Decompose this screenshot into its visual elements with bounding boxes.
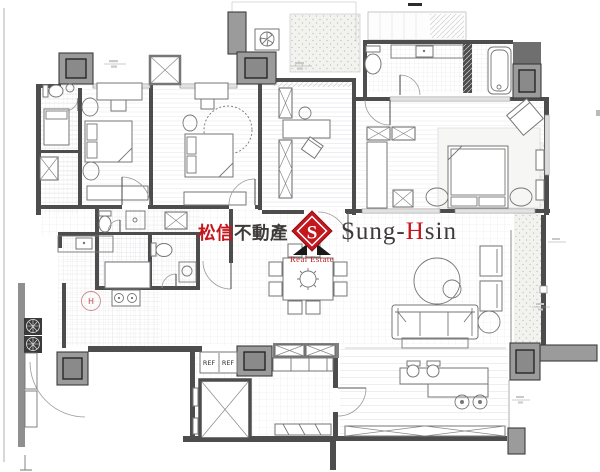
column bbox=[59, 53, 93, 84]
corner-tick bbox=[20, 455, 32, 470]
shoe-cabinet bbox=[273, 358, 333, 371]
canister bbox=[407, 361, 420, 377]
armchair bbox=[480, 281, 502, 311]
bed-single bbox=[44, 109, 69, 145]
desk bbox=[283, 120, 330, 138]
window bbox=[545, 115, 549, 175]
watermark-chinese-red: 松信 bbox=[198, 224, 234, 244]
watermark-chinese: 松信不動產 bbox=[198, 220, 288, 245]
canister bbox=[427, 361, 440, 377]
dining-chair bbox=[306, 301, 320, 314]
desk bbox=[195, 83, 228, 99]
toilet bbox=[43, 85, 63, 97]
watermark-subtitle: Real Estate bbox=[290, 254, 334, 264]
bed-double bbox=[85, 121, 132, 162]
watermark-chinese-dark: 不動產 bbox=[234, 224, 288, 244]
column bbox=[237, 346, 272, 376]
h-marker-label: H bbox=[88, 297, 94, 306]
floor-plan-page: H bbox=[0, 0, 600, 472]
dining-chair bbox=[288, 301, 302, 314]
kitchen-island bbox=[105, 262, 150, 288]
bed-double bbox=[185, 134, 233, 177]
top-dash-mark bbox=[408, 3, 422, 6]
planter bbox=[536, 180, 544, 200]
ref-label-right: REF bbox=[222, 359, 235, 367]
service-wall-bar bbox=[18, 283, 25, 447]
dining-chair bbox=[334, 282, 347, 296]
stove bbox=[112, 290, 140, 306]
desk bbox=[97, 83, 142, 100]
refrigerator-cabinet: REF REF bbox=[200, 352, 237, 373]
logo-letter: S bbox=[307, 223, 318, 244]
dining-chair bbox=[269, 282, 282, 296]
toilet bbox=[151, 243, 172, 257]
elevator-shaft-main bbox=[193, 380, 250, 439]
window bbox=[390, 97, 510, 101]
diamond-logo-icon: S bbox=[291, 210, 333, 256]
desk-chair bbox=[111, 100, 126, 111]
window-marker bbox=[540, 286, 547, 293]
dining-chair bbox=[269, 262, 282, 276]
dining-chair bbox=[334, 262, 347, 276]
column bbox=[513, 64, 541, 98]
bottom-cabinet-row bbox=[345, 426, 505, 436]
dining-table bbox=[283, 258, 333, 300]
column bbox=[510, 343, 597, 380]
window bbox=[455, 209, 535, 213]
ref-label-left: REF bbox=[203, 359, 216, 367]
desk-chair bbox=[201, 99, 214, 109]
ceiling-fan-icon bbox=[255, 29, 279, 50]
column bbox=[508, 428, 525, 454]
toilet bbox=[99, 211, 111, 232]
ac-condenser bbox=[24, 318, 42, 335]
wardrobe bbox=[367, 142, 387, 208]
wardrobe bbox=[87, 186, 148, 200]
ac-condenser bbox=[24, 336, 42, 353]
bed-king bbox=[448, 146, 508, 208]
planter bbox=[536, 150, 544, 170]
sofa bbox=[392, 305, 478, 339]
entry-cabinet-strip bbox=[273, 343, 339, 358]
wardrobe bbox=[184, 192, 246, 205]
watermark: 松信不動產 S Real Estate Sung-Hsin bbox=[198, 210, 457, 256]
column bbox=[57, 352, 88, 385]
bathtub bbox=[488, 47, 511, 94]
armchair bbox=[480, 246, 502, 276]
toilet bbox=[365, 46, 381, 74]
company-logo: S Real Estate bbox=[291, 210, 333, 256]
bookshelf bbox=[279, 140, 292, 198]
elevator-shaft-top bbox=[150, 56, 180, 84]
watermark-english: Sung-Hsin bbox=[341, 218, 457, 246]
